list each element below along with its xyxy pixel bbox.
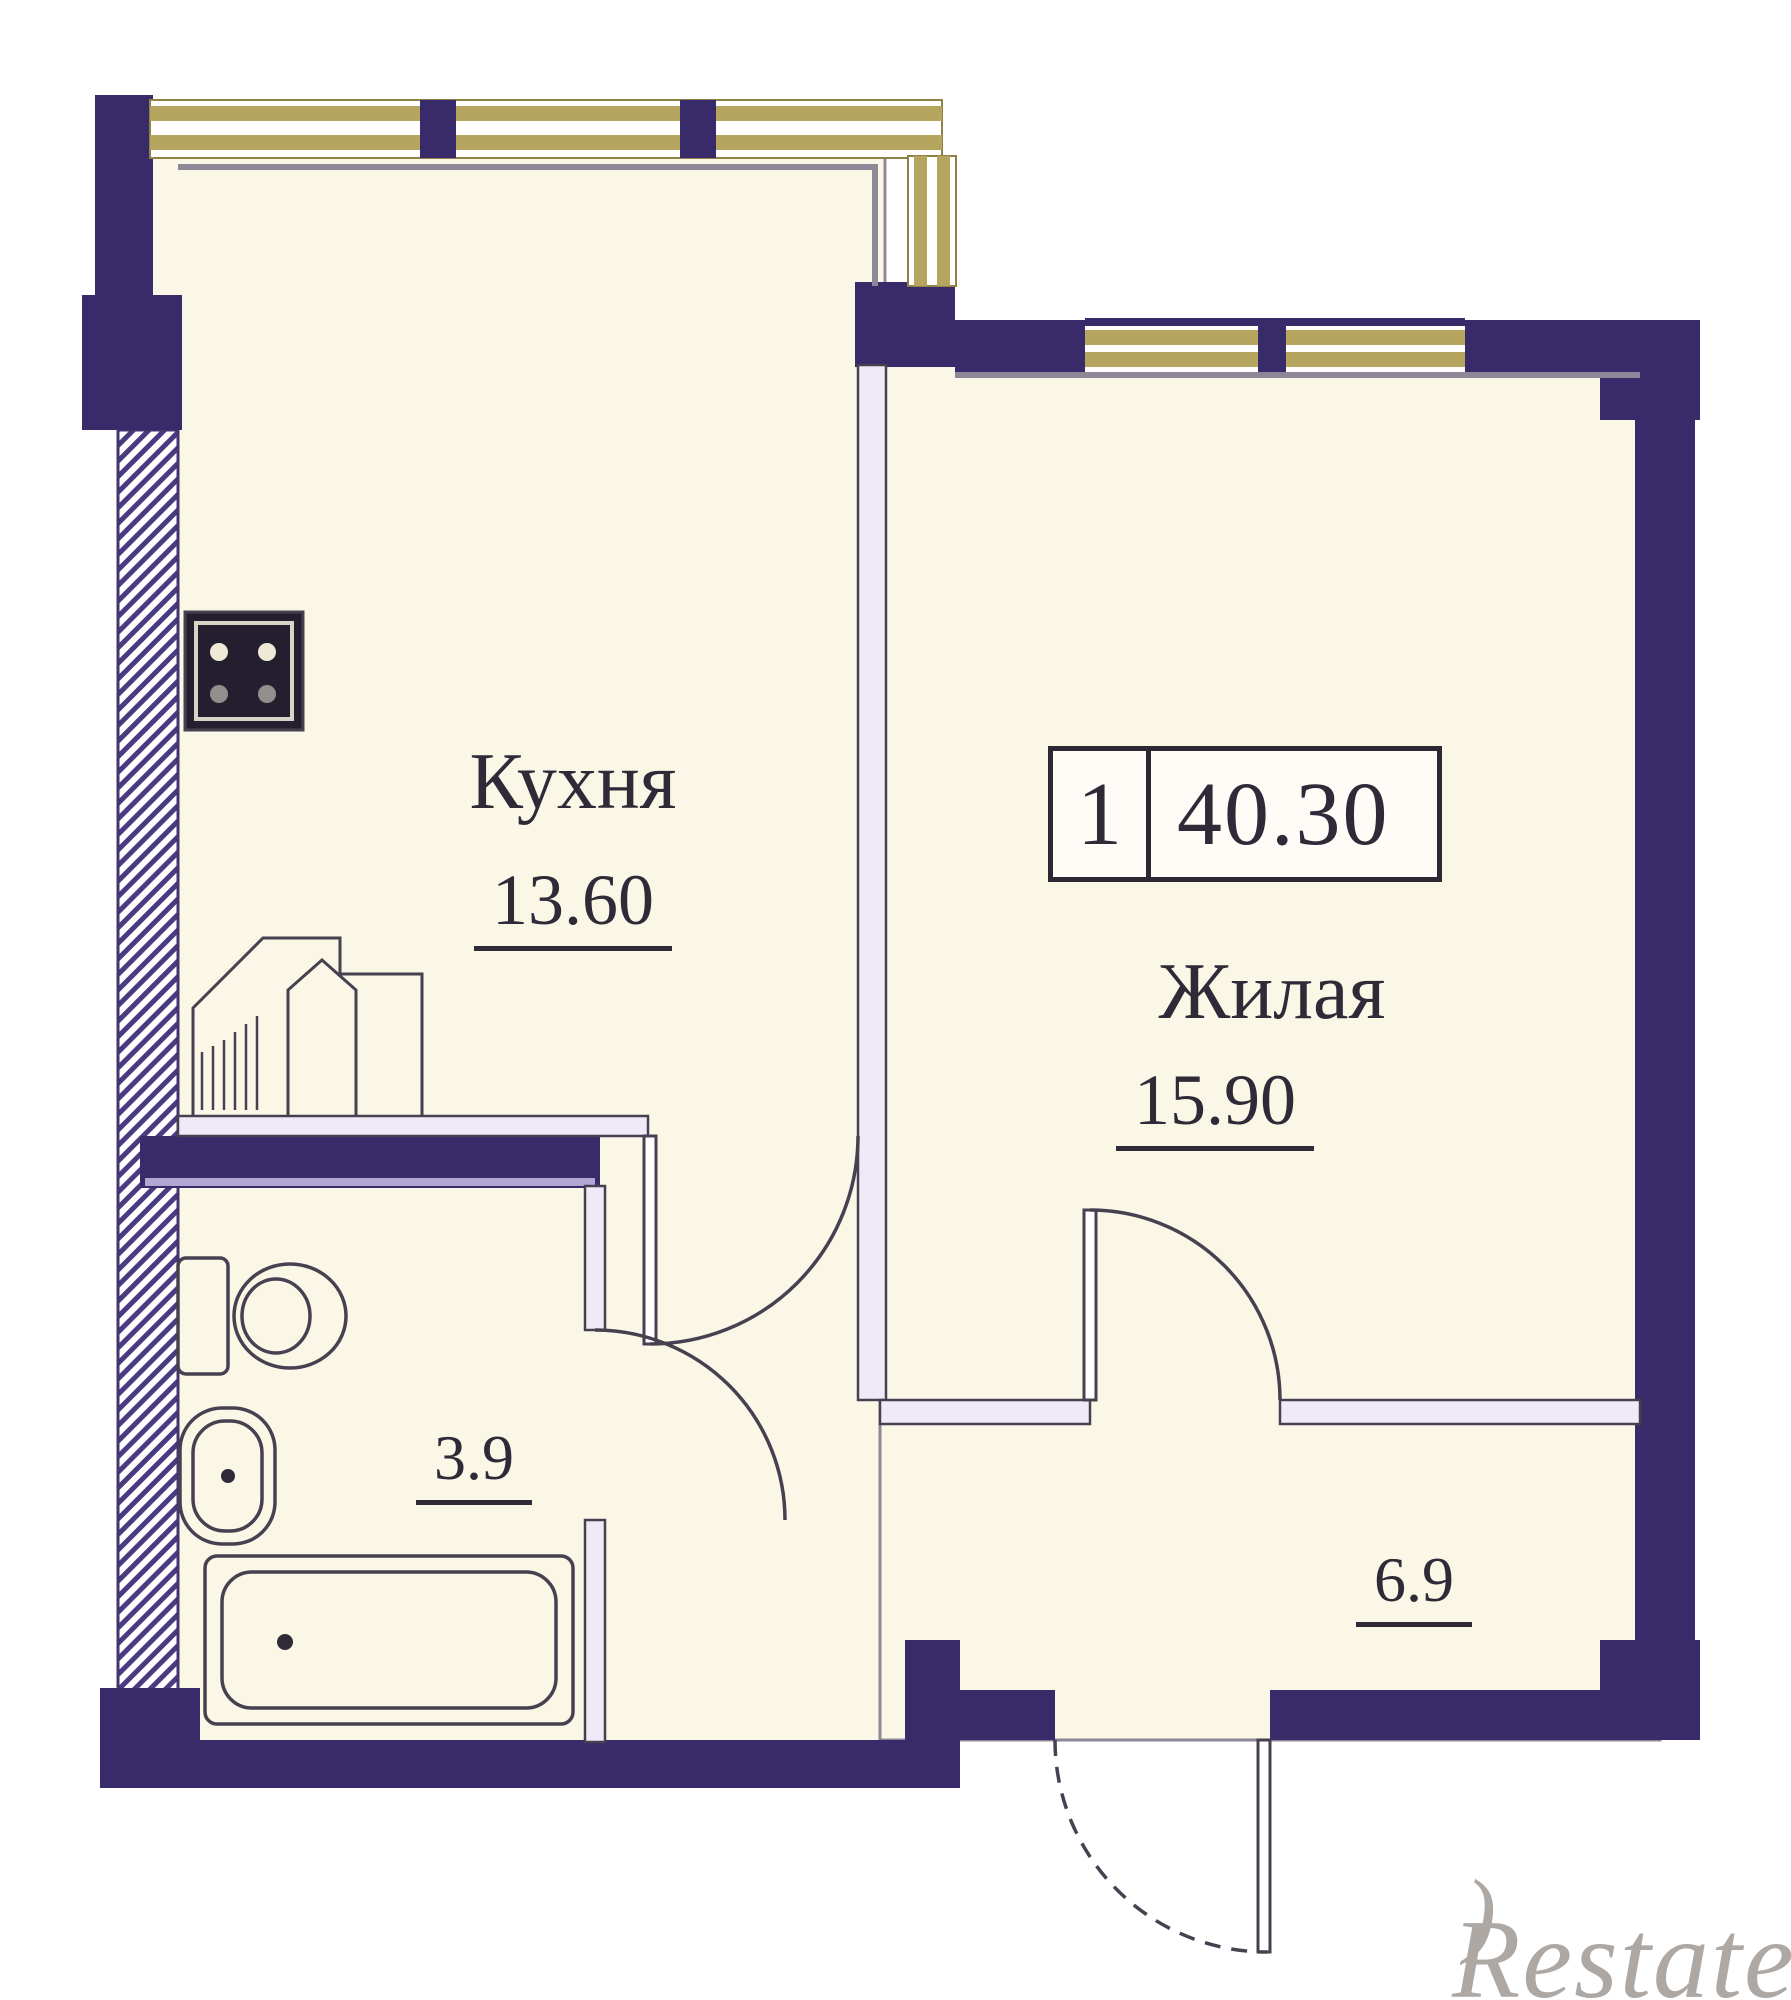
hatched-wall <box>118 430 178 1690</box>
wall-bath-bottom <box>140 1740 960 1788</box>
wall-kitchen-south <box>178 1116 648 1136</box>
window-mullion <box>420 100 456 158</box>
kitchen-door-leaf <box>644 1136 656 1344</box>
restate-watermark: R)estate <box>1452 1896 1791 2000</box>
wall-bath-north-edge <box>145 1178 595 1186</box>
wall-kitchen-corner-block <box>855 282 955 367</box>
toilet-icon <box>178 1258 346 1374</box>
hallway-area: 6.9 <box>1322 1546 1506 1627</box>
living-area: 15.90 <box>1075 1062 1355 1151</box>
apartment-info-badge: 1 40.30 <box>1048 746 1442 882</box>
wall-right <box>1635 420 1695 1640</box>
floorplan-drawing <box>0 0 1791 2000</box>
living-window-band <box>1085 318 1465 374</box>
wall-living-bottom-left <box>880 1400 1090 1424</box>
washbasin-icon <box>180 1408 275 1544</box>
total-area: 40.30 <box>1151 763 1437 866</box>
floor-areas <box>140 140 1660 1760</box>
kitchen-area-value: 13.60 <box>474 862 672 951</box>
wall-living-top-a <box>955 320 1085 378</box>
bathtub-icon <box>205 1556 573 1724</box>
entrance-door-arc <box>1055 1740 1267 1952</box>
entrance-door-leaf <box>1258 1740 1270 1952</box>
living-door-leaf <box>1084 1210 1096 1400</box>
wall-top-right-corner <box>1600 320 1700 420</box>
wall-right-pier <box>1600 1640 1700 1740</box>
hallway-area-value: 6.9 <box>1356 1546 1472 1627</box>
wall-living-bottom-right <box>1280 1400 1640 1424</box>
bathroom-area-value: 3.9 <box>416 1424 532 1505</box>
bathroom-area: 3.9 <box>382 1424 566 1505</box>
window-mullion <box>680 100 716 158</box>
living-label: Жилая <box>1082 952 1462 1032</box>
kitchen-area: 13.60 <box>383 862 763 951</box>
wall-bath-east-lower <box>585 1520 605 1742</box>
wall-living-top-b <box>1465 320 1605 378</box>
wall-kitchen-living <box>858 365 886 1400</box>
wall-bath-east-upper <box>585 1186 605 1330</box>
wall-step-pier <box>905 1640 960 1740</box>
rooms-count: 1 <box>1053 751 1151 877</box>
kitchen-label: Кухня <box>383 742 763 822</box>
stove-icon <box>185 612 303 730</box>
watermark-rest: estate <box>1522 1898 1791 2000</box>
wall-left-pier <box>82 295 182 430</box>
window-mullion <box>1258 322 1286 374</box>
living-area-value: 15.90 <box>1116 1062 1314 1151</box>
wall-hall-bottom-left <box>955 1690 1055 1740</box>
floorplan-page: 1 40.30 Кухня 13.60 Жилая 15.90 3.9 6.9 … <box>0 0 1791 2000</box>
wall-left-post <box>95 95 153 295</box>
